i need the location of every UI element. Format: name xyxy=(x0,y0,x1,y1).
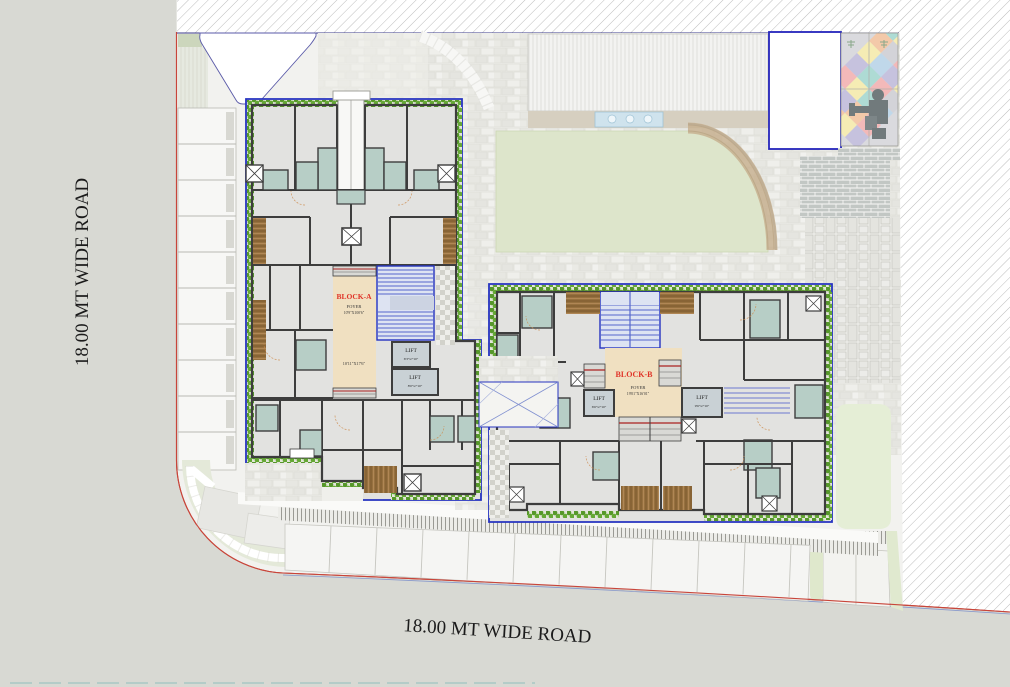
svg-text:LIFT: LIFT xyxy=(593,396,605,402)
svg-text:9'6"x7'10": 9'6"x7'10" xyxy=(695,404,710,408)
svg-text:BLOCK-B: BLOCK-B xyxy=(616,370,654,379)
svg-text:8'0"x7'10": 8'0"x7'10" xyxy=(408,384,423,388)
svg-text:10'11"X17'6": 10'11"X17'6" xyxy=(343,361,366,366)
svg-text:LIFT: LIFT xyxy=(409,375,421,381)
svg-text:10'9"X100'6": 10'9"X100'6" xyxy=(344,311,365,315)
svg-text:LIFT: LIFT xyxy=(696,395,708,401)
svg-text:BLOCK-A: BLOCK-A xyxy=(336,292,372,301)
svg-text:FOYER: FOYER xyxy=(347,304,362,309)
svg-text:6'6"x7'10": 6'6"x7'10" xyxy=(592,405,607,409)
svg-text:FOYER: FOYER xyxy=(631,385,646,390)
svg-text:18.00 MT WIDE ROAD: 18.00 MT WIDE ROAD xyxy=(72,178,93,366)
svg-text:6'3"x7'10": 6'3"x7'10" xyxy=(404,357,419,361)
svg-text:LIFT: LIFT xyxy=(405,348,417,354)
svg-text:19'01"X16'01": 19'01"X16'01" xyxy=(627,392,650,396)
